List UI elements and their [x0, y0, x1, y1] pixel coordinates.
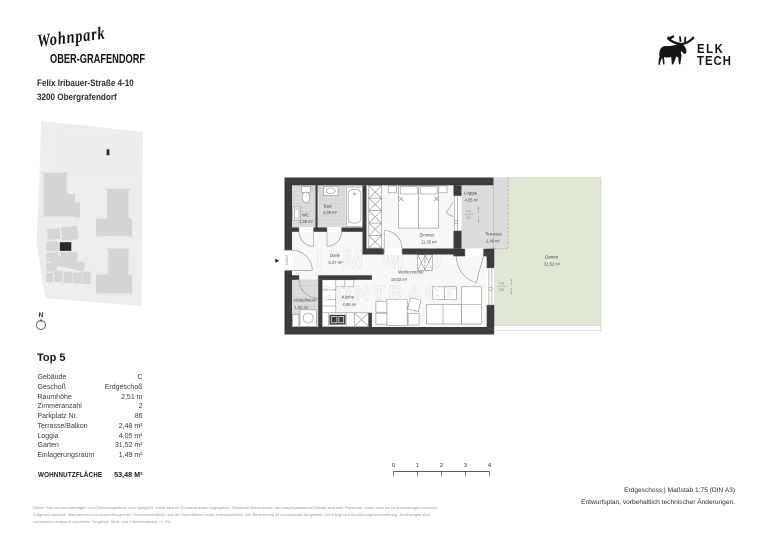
svg-text:4,05 m²: 4,05 m²: [465, 198, 480, 203]
svg-text:90/202: 90/202: [285, 255, 289, 265]
svg-text:Garten: Garten: [545, 255, 559, 260]
svg-text:Terrasse: Terrasse: [485, 232, 502, 237]
svg-text:Loggia: Loggia: [464, 191, 478, 196]
svg-text:2: 2: [440, 463, 443, 469]
svg-text:3: 3: [464, 463, 467, 469]
svg-text:4: 4: [488, 463, 492, 469]
svg-text:4,05 m²: 4,05 m²: [323, 210, 338, 215]
svg-text:2,48 m²: 2,48 m²: [486, 239, 501, 244]
svg-text:1: 1: [416, 463, 419, 469]
svg-text:WC: WC: [302, 213, 309, 218]
svg-text:Wohnzimmer: Wohnzimmer: [398, 270, 424, 275]
svg-text:170: 170: [466, 210, 472, 214]
svg-text:4,95 m²: 4,95 m²: [343, 302, 358, 307]
svg-text:1,50 m²: 1,50 m²: [295, 305, 310, 310]
svg-text:Abstellraum: Abstellraum: [293, 298, 317, 303]
svg-text:220: 220: [499, 288, 505, 292]
svg-text:31,52 m²: 31,52 m²: [544, 262, 561, 267]
svg-text:Bad: Bad: [324, 204, 332, 209]
svg-text:N: N: [39, 312, 44, 319]
svg-text:170: 170: [499, 282, 505, 286]
svg-text:Diele: Diele: [330, 253, 341, 258]
svg-text:CONTRACT: CONTRACT: [317, 282, 459, 305]
svg-text:Küche: Küche: [342, 295, 355, 300]
svg-text:6,27 m²: 6,27 m²: [329, 260, 344, 265]
svg-text:Zimmer: Zimmer: [420, 233, 435, 238]
svg-text:0: 0: [392, 463, 395, 469]
svg-text:220: 220: [466, 216, 472, 220]
svg-text:19,02 m²: 19,02 m²: [391, 277, 408, 282]
svg-text:1,90 m²: 1,90 m²: [299, 219, 314, 224]
svg-text:11,35 m²: 11,35 m²: [421, 240, 437, 245]
